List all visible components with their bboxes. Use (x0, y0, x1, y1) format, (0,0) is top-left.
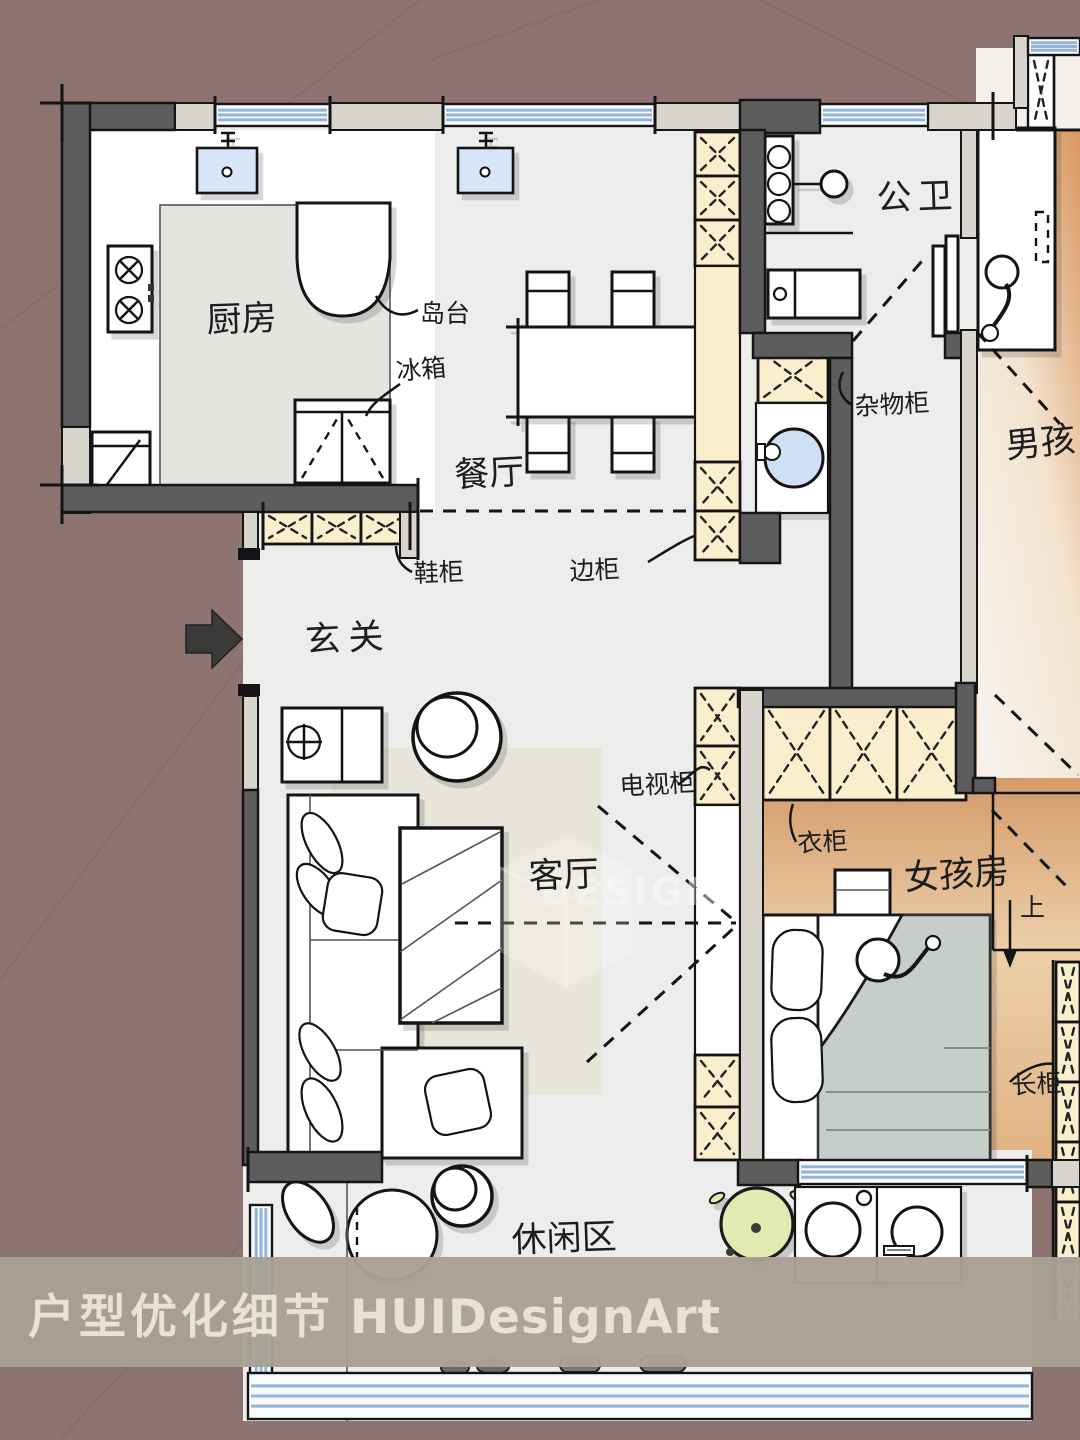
banner-title: 户型优化细节 (28, 1290, 334, 1345)
wardrobe-cell (830, 705, 897, 800)
tall-cabinet-body (695, 266, 740, 462)
vanity (768, 270, 860, 318)
label-tv-cabinet: 电视柜 (619, 768, 695, 801)
side-table-icon (432, 1166, 492, 1226)
label-dining: 餐厅 (453, 452, 525, 496)
washing-machine-icon (756, 403, 828, 513)
label-boy-room: 男孩 (1004, 420, 1078, 467)
wardrobe-cell (763, 705, 830, 800)
coffee-table (400, 828, 502, 1023)
label-wardrobe: 衣柜 (797, 826, 848, 858)
shoe-cabinet-cell (312, 510, 361, 544)
label-kitchen: 厨房 (206, 299, 277, 341)
round-chair-icon (413, 693, 501, 781)
floorplan-image: DESIGN 厨房 餐厅 公卫 男孩 玄关 客厅 女孩房 休闲区 岛台 冰箱 杂… (0, 0, 1080, 1440)
dining-chair (527, 417, 569, 472)
label-island: 岛台 (420, 299, 470, 328)
console-table (282, 708, 382, 782)
label-entry: 玄关 (304, 617, 392, 661)
label-stairs-up: 上 (1020, 893, 1045, 922)
fridge-icon (295, 400, 390, 483)
label-fridge: 冰箱 (395, 353, 447, 386)
label-sundry-cabinet: 杂物柜 (854, 388, 930, 421)
island-counter (297, 203, 390, 316)
title-banner: 户型优化细节HUIDesignArt (0, 1257, 1080, 1367)
label-long-cabinet: 长柜 (1011, 1068, 1062, 1100)
shoe-cabinet-cell (263, 510, 312, 544)
bath-door-leaf (933, 246, 945, 336)
label-side-cabinet: 边柜 (569, 554, 620, 586)
long-cabinet-cell (1056, 1202, 1080, 1262)
label-public-bath: 公卫 (876, 176, 959, 219)
boy-door-leaf (946, 236, 958, 332)
dining-chair (612, 272, 654, 327)
dining-chair (527, 272, 569, 327)
label-living: 客厅 (528, 855, 599, 897)
label-girl-room: 女孩房 (903, 852, 1011, 899)
shower-shelf-icon (765, 136, 793, 224)
long-cabinet-cell (1056, 962, 1080, 1022)
floorplan-canvas: DESIGN 厨房 餐厅 公卫 男孩 玄关 客厅 女孩房 休闲区 岛台 冰箱 杂… (0, 0, 1080, 1440)
banner-brand: HUIDesignArt (350, 1290, 721, 1345)
boy-desk (978, 128, 1055, 350)
dining-chair (612, 417, 654, 472)
label-shoe-cabinet: 鞋柜 (413, 557, 464, 588)
bottom-ground (243, 1421, 1032, 1440)
stove-icon (108, 246, 154, 332)
label-leisure: 休闲区 (511, 1217, 617, 1261)
tv-column-open (695, 805, 740, 1055)
dining-table (506, 318, 710, 426)
